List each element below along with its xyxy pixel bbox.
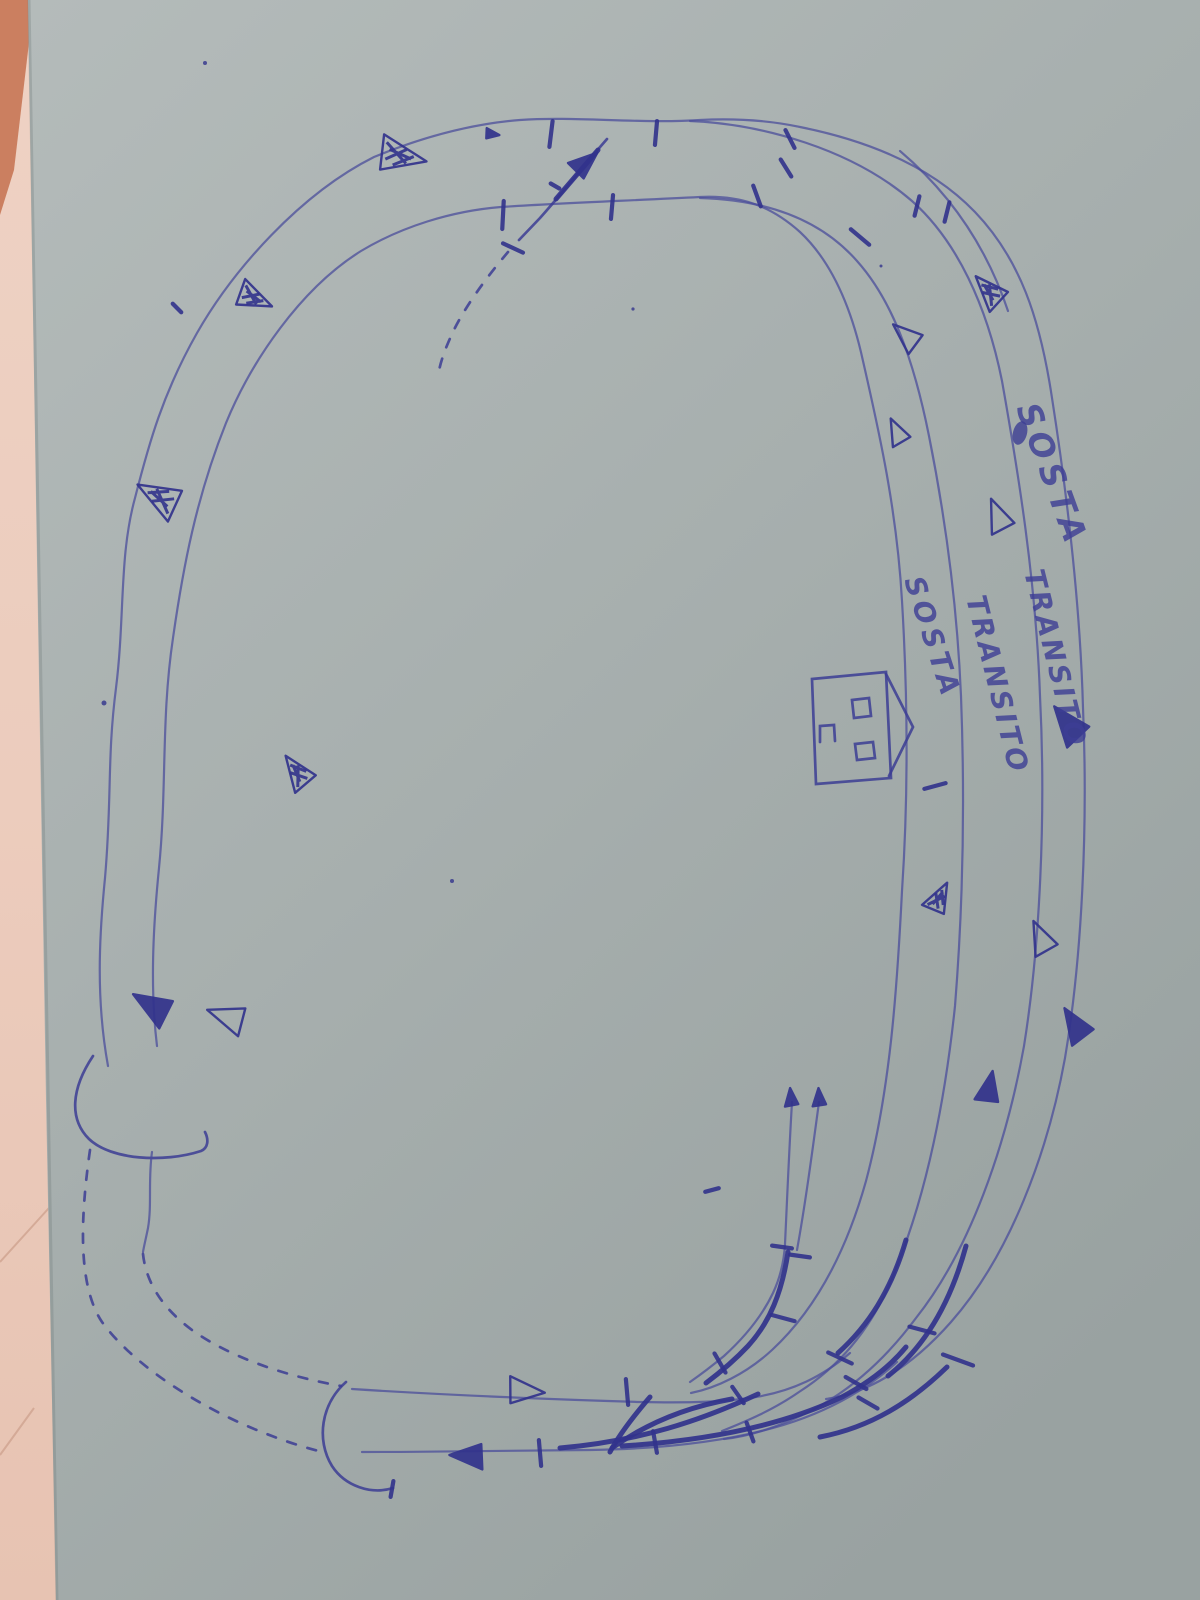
- tick-mark: [611, 195, 613, 219]
- tick-mark: [539, 1440, 541, 1466]
- tick-mark: [772, 1246, 792, 1249]
- ink-dot: [203, 61, 207, 65]
- ink-dot: [631, 307, 634, 310]
- tick-mark: [391, 1481, 394, 1497]
- photo-of-hand-drawn-track-plan: SOSTA TRANSITO TRANSITO SOSTA: [0, 0, 1200, 1600]
- track-plan-sketch: SOSTA TRANSITO TRANSITO SOSTA: [0, 0, 1200, 1600]
- ink-dot: [450, 879, 454, 883]
- tick-mark: [790, 1255, 810, 1258]
- tick-mark: [626, 1379, 628, 1405]
- ink-dot: [880, 265, 883, 268]
- tick-mark: [655, 121, 657, 145]
- ink-dot: [102, 701, 107, 706]
- tick-mark: [502, 201, 503, 229]
- paper-sheet: [28, 0, 1200, 1600]
